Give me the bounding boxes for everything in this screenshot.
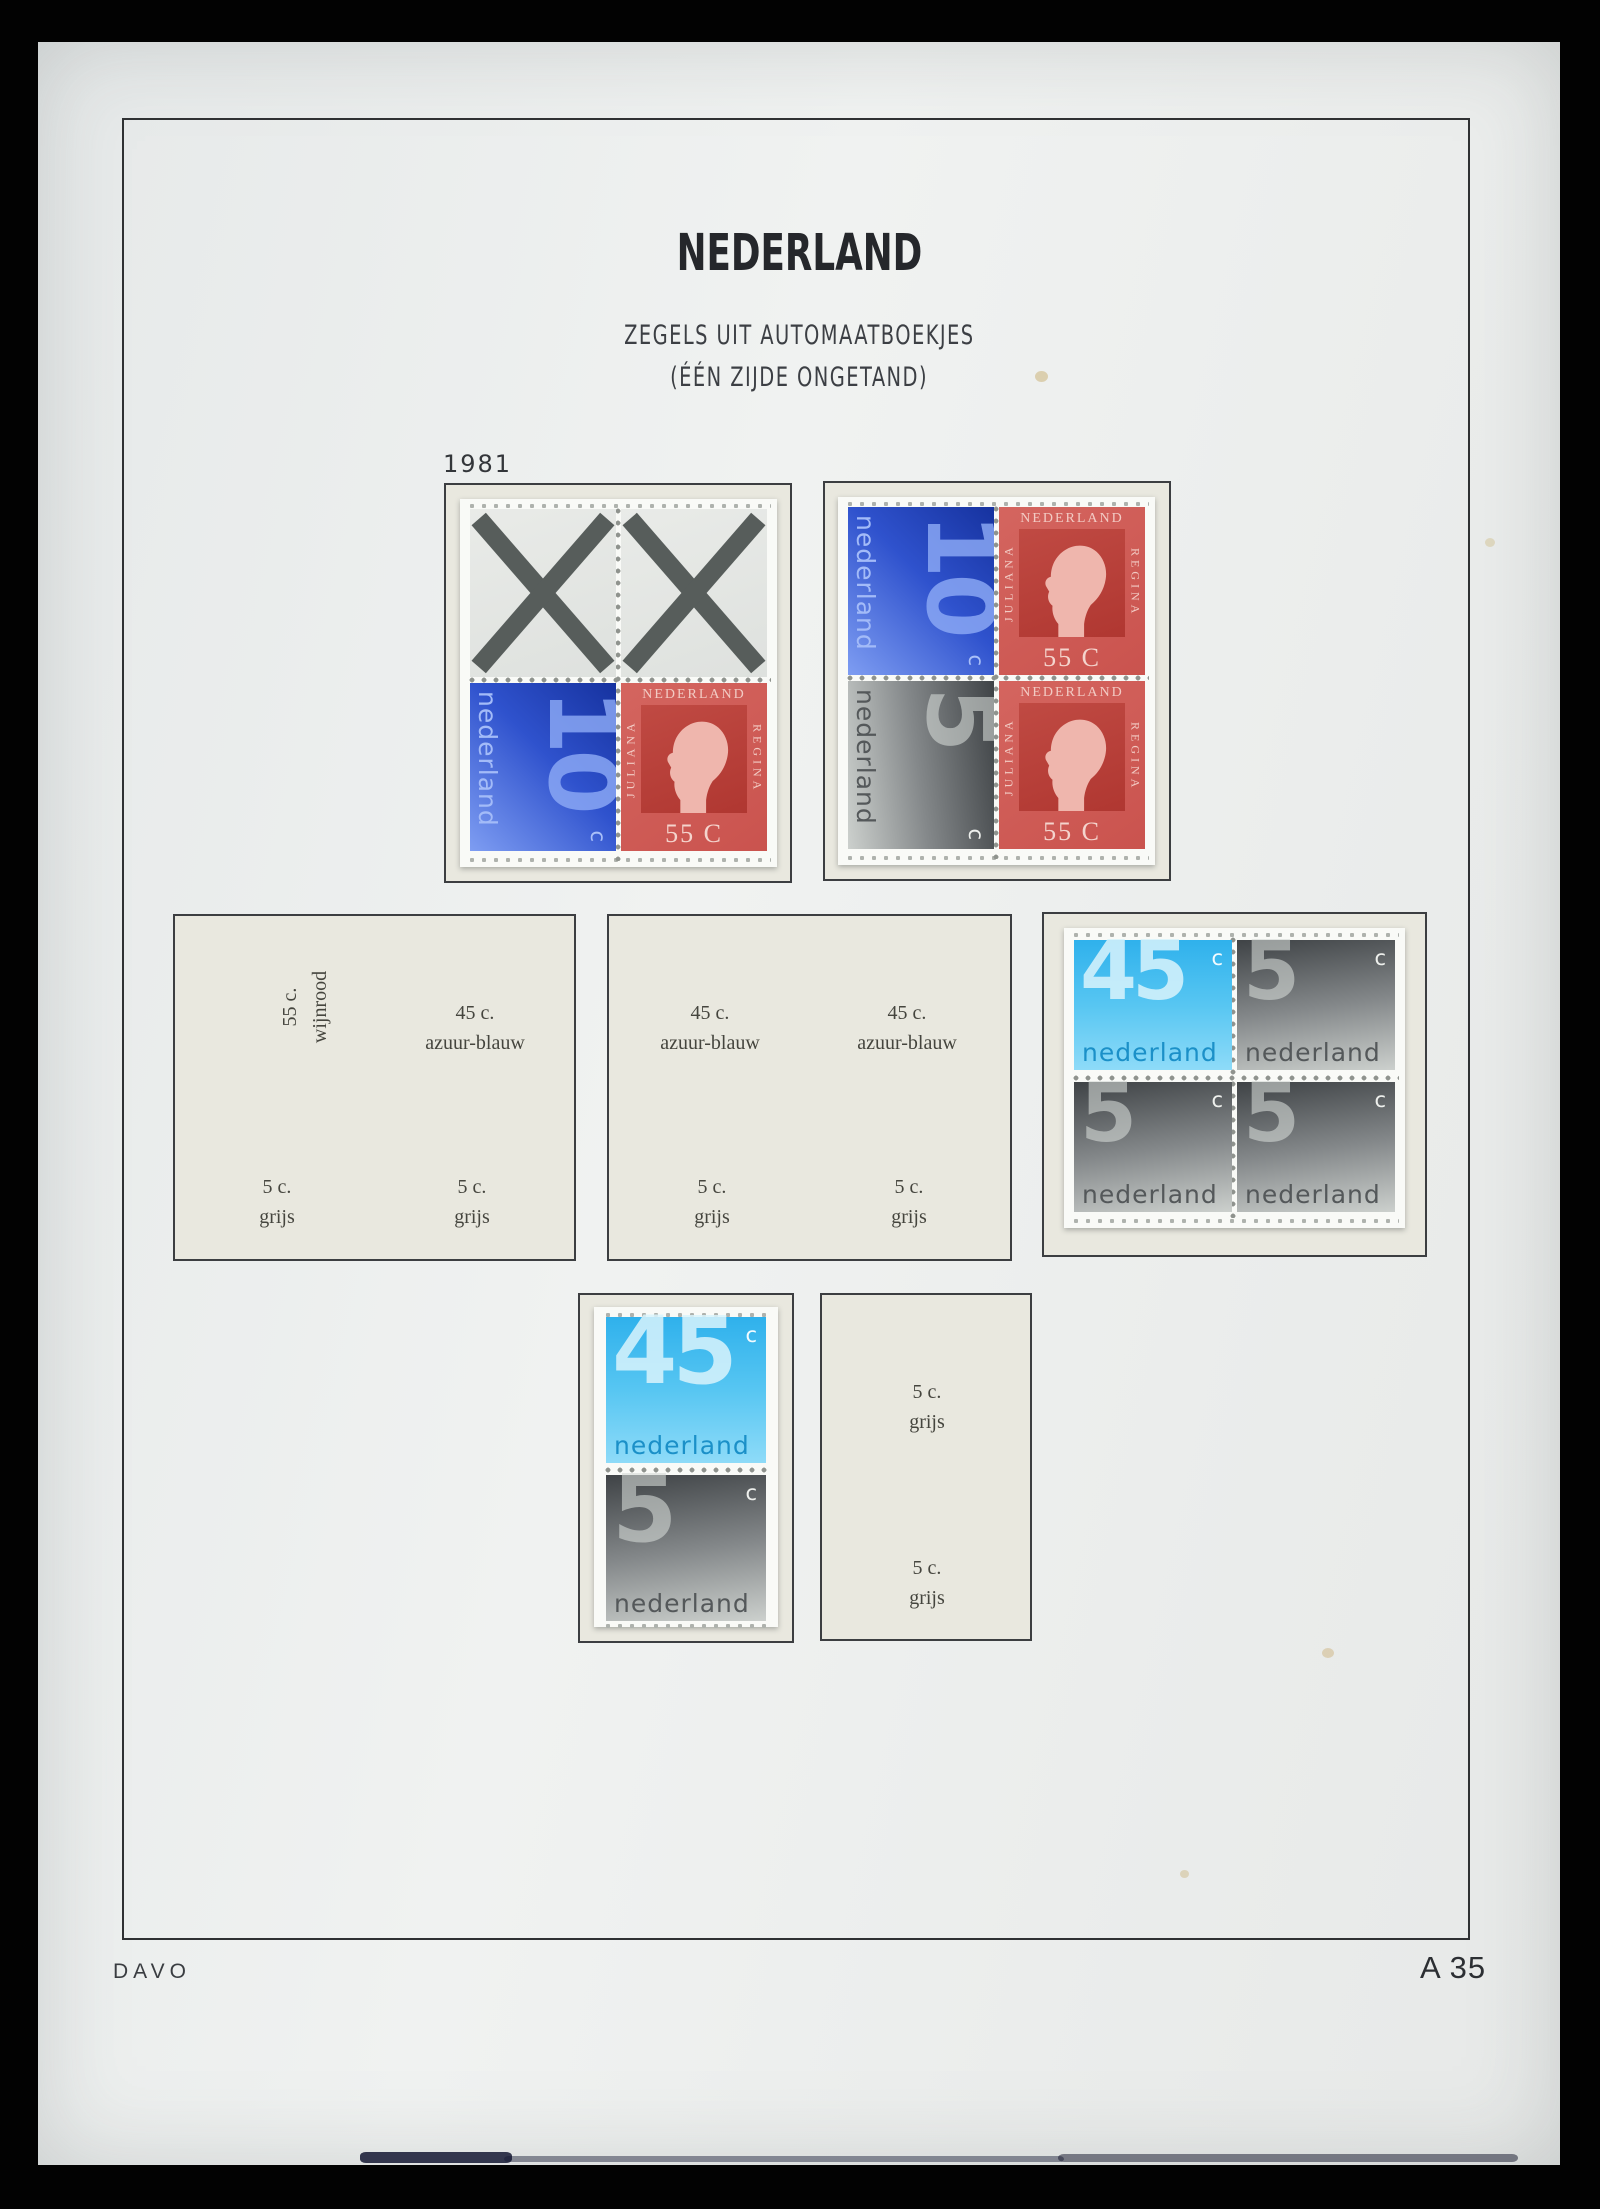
- stamp-country: nederland: [1245, 1180, 1381, 1209]
- placeholder-box-middle: 45 c. azuur-blauw 45 c. azuur-blauw 5 c.…: [607, 914, 1012, 1261]
- stamp-value: 45: [1080, 931, 1184, 1013]
- stamp-country: NEDERLAND: [999, 511, 1145, 527]
- stamp-denomination: 55 C: [621, 819, 767, 849]
- portrait-panel: [1019, 529, 1125, 637]
- stamp-10c-blue-rotated: 10 c nederland: [848, 507, 994, 675]
- paper-stain: [1180, 1870, 1189, 1878]
- placeholder-box-left: 55 c. wijnrood 45 c. azuur-blauw 5 c. gr…: [173, 914, 576, 1261]
- stamp-currency: c: [586, 830, 610, 842]
- stamp-design: 5 c nederland: [848, 681, 994, 849]
- stamp-country: nederland: [1245, 1038, 1381, 1067]
- stamp-cross-filler: [470, 509, 616, 677]
- paper-stain: [1322, 1648, 1334, 1658]
- stamp-45c-azure: 45 c nederland: [606, 1317, 766, 1463]
- stamp-value: 5: [1243, 931, 1295, 1013]
- stamp-denomination: 55 C: [999, 643, 1145, 673]
- stamp-design: 5 c nederland: [1237, 1082, 1395, 1212]
- placeholder-5c-grijs: 5 c. grijs: [857, 1553, 997, 1613]
- placeholder-5c-grijs: 5 c. grijs: [207, 1172, 347, 1232]
- stamp-45c-azure: 45 c nederland: [1074, 940, 1232, 1070]
- stamp-value: 10: [534, 689, 616, 810]
- photo-background: NEDERLAND ZEGELS UIT AUTOMAATBOEKJES (ÉÉ…: [0, 0, 1600, 2209]
- stamp-55c-juliana: NEDERLAND JULIANA REGINA 55 C: [999, 507, 1145, 675]
- stamp-country: nederland: [851, 689, 880, 825]
- stamp-cross-filler: [621, 509, 767, 677]
- placeholder-color: grijs: [642, 1202, 782, 1232]
- stamp-design: 45 c nederland: [606, 1317, 766, 1463]
- placeholder-color: azuur-blauw: [385, 1028, 565, 1058]
- placeholder-color: grijs: [857, 1583, 997, 1613]
- placeholder-value: 5 c.: [857, 1377, 997, 1407]
- stamp-design: 10 c nederland: [848, 507, 994, 675]
- page-subtitle-line2: (ÉÉN ZIJDE ONGETAND): [38, 362, 1560, 393]
- stamp-design: 5 c nederland: [1237, 940, 1395, 1070]
- placeholder-value: 45 c.: [385, 998, 565, 1028]
- stamp-design: 5 c nederland: [606, 1475, 766, 1621]
- placeholder-55c-wijnrood: 55 c. wijnrood: [249, 937, 361, 1077]
- placeholder-value: 55 c.: [275, 937, 305, 1077]
- stamp-design: 45 c nederland: [1074, 940, 1232, 1070]
- placeholder-color: azuur-blauw: [620, 1028, 800, 1058]
- stamp-currency: c: [1211, 946, 1223, 970]
- placeholder-color: wijnrood: [305, 937, 335, 1077]
- stamp-currency: c: [964, 654, 988, 666]
- ink-smudge: [360, 2152, 512, 2163]
- placeholder-value: 5 c.: [839, 1172, 979, 1202]
- stamp-pair-45-5: 45 c nederland 5 c nederland: [578, 1293, 794, 1643]
- stamp-currency: c: [964, 828, 988, 840]
- stamp-currency: c: [745, 1323, 757, 1347]
- stamp-currency: c: [1374, 946, 1386, 970]
- stamp-denomination: 55 C: [999, 817, 1145, 847]
- stamp-10c-blue-rotated: 10 c nederland: [470, 683, 616, 851]
- page-subtitle-line1-text: ZEGELS UIT AUTOMAATBOEKJES: [624, 320, 974, 351]
- placeholder-box-bottom: 5 c. grijs 5 c. grijs: [820, 1293, 1032, 1641]
- album-page: NEDERLAND ZEGELS UIT AUTOMAATBOEKJES (ÉÉ…: [38, 42, 1560, 2165]
- stamp-block-1981-right: 10 c nederland NEDERLAND JULIANA REGINA …: [823, 481, 1171, 881]
- stamp-5c-gray: 5 c nederland: [1237, 1082, 1395, 1212]
- page-subtitle-line2-text: (ÉÉN ZIJDE ONGETAND): [670, 362, 928, 393]
- queen-juliana-portrait: [1025, 531, 1118, 637]
- paper-stain: [1035, 371, 1048, 382]
- stamp-currency: c: [745, 1481, 757, 1505]
- placeholder-45c-azuurblauw: 45 c. azuur-blauw: [817, 998, 997, 1058]
- stamp-55c-juliana: NEDERLAND JULIANA REGINA 55 C: [621, 683, 767, 851]
- stamp-value: 5: [1243, 1073, 1295, 1155]
- stamp-value: 10: [912, 513, 994, 634]
- ink-smudge: [504, 2156, 1064, 2162]
- stamp-5c-gray: 5 c nederland: [1237, 940, 1395, 1070]
- placeholder-value: 5 c.: [642, 1172, 782, 1202]
- stamp-5c-gray: 5 c nederland: [606, 1475, 766, 1621]
- stamp-name-right: REGINA: [1127, 703, 1143, 811]
- stamp-country: nederland: [1082, 1180, 1218, 1209]
- stamp-value: 45: [612, 1305, 733, 1399]
- page-title-text: NEDERLAND: [676, 224, 922, 283]
- placeholder-value: 45 c.: [817, 998, 997, 1028]
- stamp-country: nederland: [851, 515, 880, 651]
- placeholder-5c-grijs: 5 c. grijs: [402, 1172, 542, 1232]
- page-number: A 35: [1420, 1950, 1486, 1986]
- stamp-design: 5 c nederland: [1074, 1082, 1232, 1212]
- stamp-currency: c: [1211, 1088, 1223, 1112]
- stamp-name-left: JULIANA: [1001, 703, 1017, 811]
- stamp-name-right: REGINA: [749, 705, 765, 813]
- queen-juliana-portrait: [647, 707, 740, 813]
- stamp-55c-juliana: NEDERLAND JULIANA REGINA 55 C: [999, 681, 1145, 849]
- placeholder-5c-grijs: 5 c. grijs: [839, 1172, 979, 1232]
- placeholder-45c-azuurblauw: 45 c. azuur-blauw: [620, 998, 800, 1058]
- placeholder-color: azuur-blauw: [817, 1028, 997, 1058]
- stamp-value: 5: [612, 1463, 672, 1557]
- stamp-country: nederland: [614, 1589, 750, 1618]
- portrait-panel: [1019, 703, 1125, 811]
- stamp-currency: c: [1374, 1088, 1386, 1112]
- stamp-block-45-5: 45 c nederland 5 c nederland 5 c: [1042, 912, 1427, 1257]
- placeholder-color: grijs: [402, 1202, 542, 1232]
- stamp-mount: 45 c nederland 5 c nederland 5 c: [1064, 928, 1405, 1228]
- stamp-country: NEDERLAND: [621, 687, 767, 703]
- stamp-country: nederland: [1082, 1038, 1218, 1067]
- placeholder-5c-grijs: 5 c. grijs: [857, 1377, 997, 1437]
- placeholder-45c-azuurblauw: 45 c. azuur-blauw: [385, 998, 565, 1058]
- stamp-block-1981-left: 10 c nederland NEDERLAND JULIANA REGINA …: [444, 483, 792, 883]
- placeholder-value: 5 c.: [857, 1553, 997, 1583]
- stamp-mount: 45 c nederland 5 c nederland: [594, 1307, 778, 1627]
- stamp-value: 5: [912, 687, 994, 747]
- stamp-country: nederland: [473, 691, 502, 827]
- queen-juliana-portrait: [1025, 705, 1118, 811]
- stamp-name-right: REGINA: [1127, 529, 1143, 637]
- stamp-name-left: JULIANA: [1001, 529, 1017, 637]
- stamp-country: NEDERLAND: [999, 685, 1145, 701]
- placeholder-5c-grijs: 5 c. grijs: [642, 1172, 782, 1232]
- placeholder-value: 45 c.: [620, 998, 800, 1028]
- perforation-row: [1070, 1217, 1399, 1225]
- stamp-mount: 10 c nederland NEDERLAND JULIANA REGINA …: [838, 497, 1155, 865]
- stamp-mount: 10 c nederland NEDERLAND JULIANA REGINA …: [460, 499, 777, 867]
- publisher-label: DAVO: [113, 1960, 191, 1984]
- placeholder-color: grijs: [857, 1407, 997, 1437]
- placeholder-value: 5 c.: [207, 1172, 347, 1202]
- stamp-value: 5: [1080, 1073, 1132, 1155]
- stamp-design: 10 c nederland: [470, 683, 616, 851]
- page-title: NEDERLAND: [38, 224, 1560, 283]
- placeholder-color: grijs: [207, 1202, 347, 1232]
- paper-stain: [1485, 538, 1495, 547]
- portrait-panel: [641, 705, 747, 813]
- year-label: 1981: [443, 450, 512, 478]
- stamp-name-left: JULIANA: [623, 705, 639, 813]
- page-subtitle-line1: ZEGELS UIT AUTOMAATBOEKJES: [38, 320, 1560, 351]
- placeholder-color: grijs: [839, 1202, 979, 1232]
- perforation-row: [602, 1622, 770, 1630]
- ink-smudge: [1058, 2154, 1518, 2162]
- stamp-5c-gray: 5 c nederland: [1074, 1082, 1232, 1212]
- placeholder-value: 5 c.: [402, 1172, 542, 1202]
- stamp-5c-gray-rotated: 5 c nederland: [848, 681, 994, 849]
